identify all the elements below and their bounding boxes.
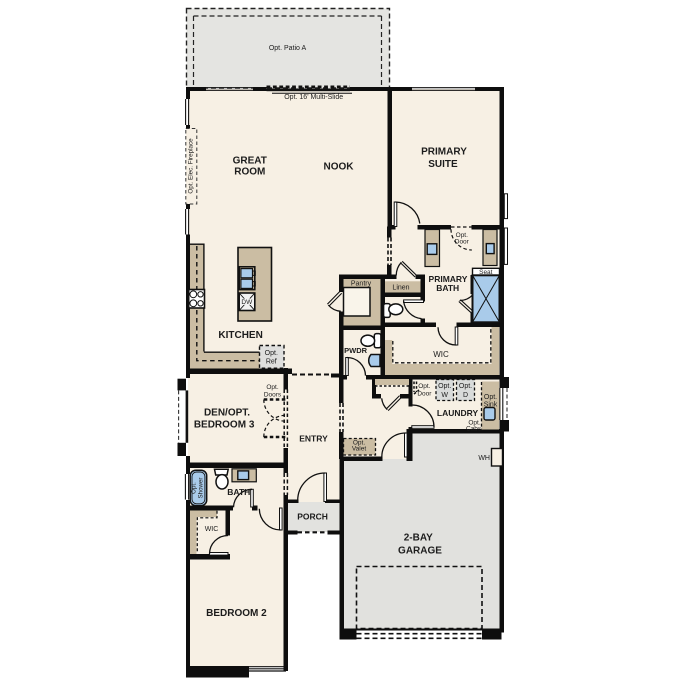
svg-text:Valet: Valet bbox=[352, 445, 367, 452]
svg-text:Doors: Doors bbox=[264, 391, 282, 398]
svg-text:Linen: Linen bbox=[392, 284, 409, 291]
svg-text:Ref: Ref bbox=[266, 359, 277, 366]
svg-text:WH: WH bbox=[478, 455, 490, 462]
svg-text:Opt.: Opt. bbox=[459, 383, 472, 390]
svg-text:BATH: BATH bbox=[436, 283, 459, 293]
svg-text:WIC: WIC bbox=[205, 526, 219, 533]
svg-text:2-BAY: 2-BAY bbox=[404, 533, 433, 544]
svg-text:D: D bbox=[463, 392, 468, 399]
svg-text:Opt. 16' Multi-Slide: Opt. 16' Multi-Slide bbox=[284, 94, 343, 101]
svg-text:Opt.: Opt. bbox=[266, 384, 278, 391]
svg-text:Door: Door bbox=[417, 390, 432, 397]
svg-text:Opt.: Opt. bbox=[265, 350, 278, 357]
svg-text:Sink: Sink bbox=[484, 401, 498, 408]
svg-text:PORCH: PORCH bbox=[297, 512, 328, 522]
svg-text:GREAT: GREAT bbox=[233, 156, 267, 167]
svg-text:NOOK: NOOK bbox=[324, 161, 355, 172]
svg-text:ROOM: ROOM bbox=[234, 167, 265, 178]
svg-text:Door: Door bbox=[455, 239, 470, 246]
svg-text:Pantry: Pantry bbox=[351, 281, 372, 288]
svg-text:LAUNDRY: LAUNDRY bbox=[437, 408, 479, 418]
svg-text:BEDROOM 2: BEDROOM 2 bbox=[206, 608, 267, 619]
svg-text:Opt. Elec. Fireplace: Opt. Elec. Fireplace bbox=[187, 138, 194, 194]
svg-text:WIC: WIC bbox=[433, 350, 449, 359]
svg-text:ENTRY: ENTRY bbox=[299, 433, 328, 443]
svg-text:Opt.: Opt. bbox=[484, 394, 497, 401]
svg-text:Cabs.: Cabs. bbox=[466, 426, 483, 433]
svg-text:PWDR: PWDR bbox=[344, 346, 367, 355]
svg-text:PRIMARY: PRIMARY bbox=[421, 147, 467, 158]
svg-text:BATH: BATH bbox=[227, 487, 250, 497]
svg-text:BEDROOM 3: BEDROOM 3 bbox=[194, 420, 255, 431]
svg-text:GARAGE: GARAGE bbox=[398, 546, 442, 557]
svg-text:Opt.: Opt. bbox=[438, 383, 451, 390]
svg-text:Opt.: Opt. bbox=[191, 482, 198, 494]
svg-text:Shower: Shower bbox=[198, 478, 205, 499]
svg-text:SUITE: SUITE bbox=[428, 159, 458, 170]
svg-text:Opt. Patio A: Opt. Patio A bbox=[269, 45, 307, 52]
svg-text:Opt.: Opt. bbox=[418, 383, 430, 390]
svg-text:KITCHEN: KITCHEN bbox=[218, 330, 262, 341]
svg-text:DEN/OPT.: DEN/OPT. bbox=[204, 407, 250, 418]
svg-text:DW: DW bbox=[241, 299, 253, 306]
svg-text:W: W bbox=[441, 392, 448, 399]
